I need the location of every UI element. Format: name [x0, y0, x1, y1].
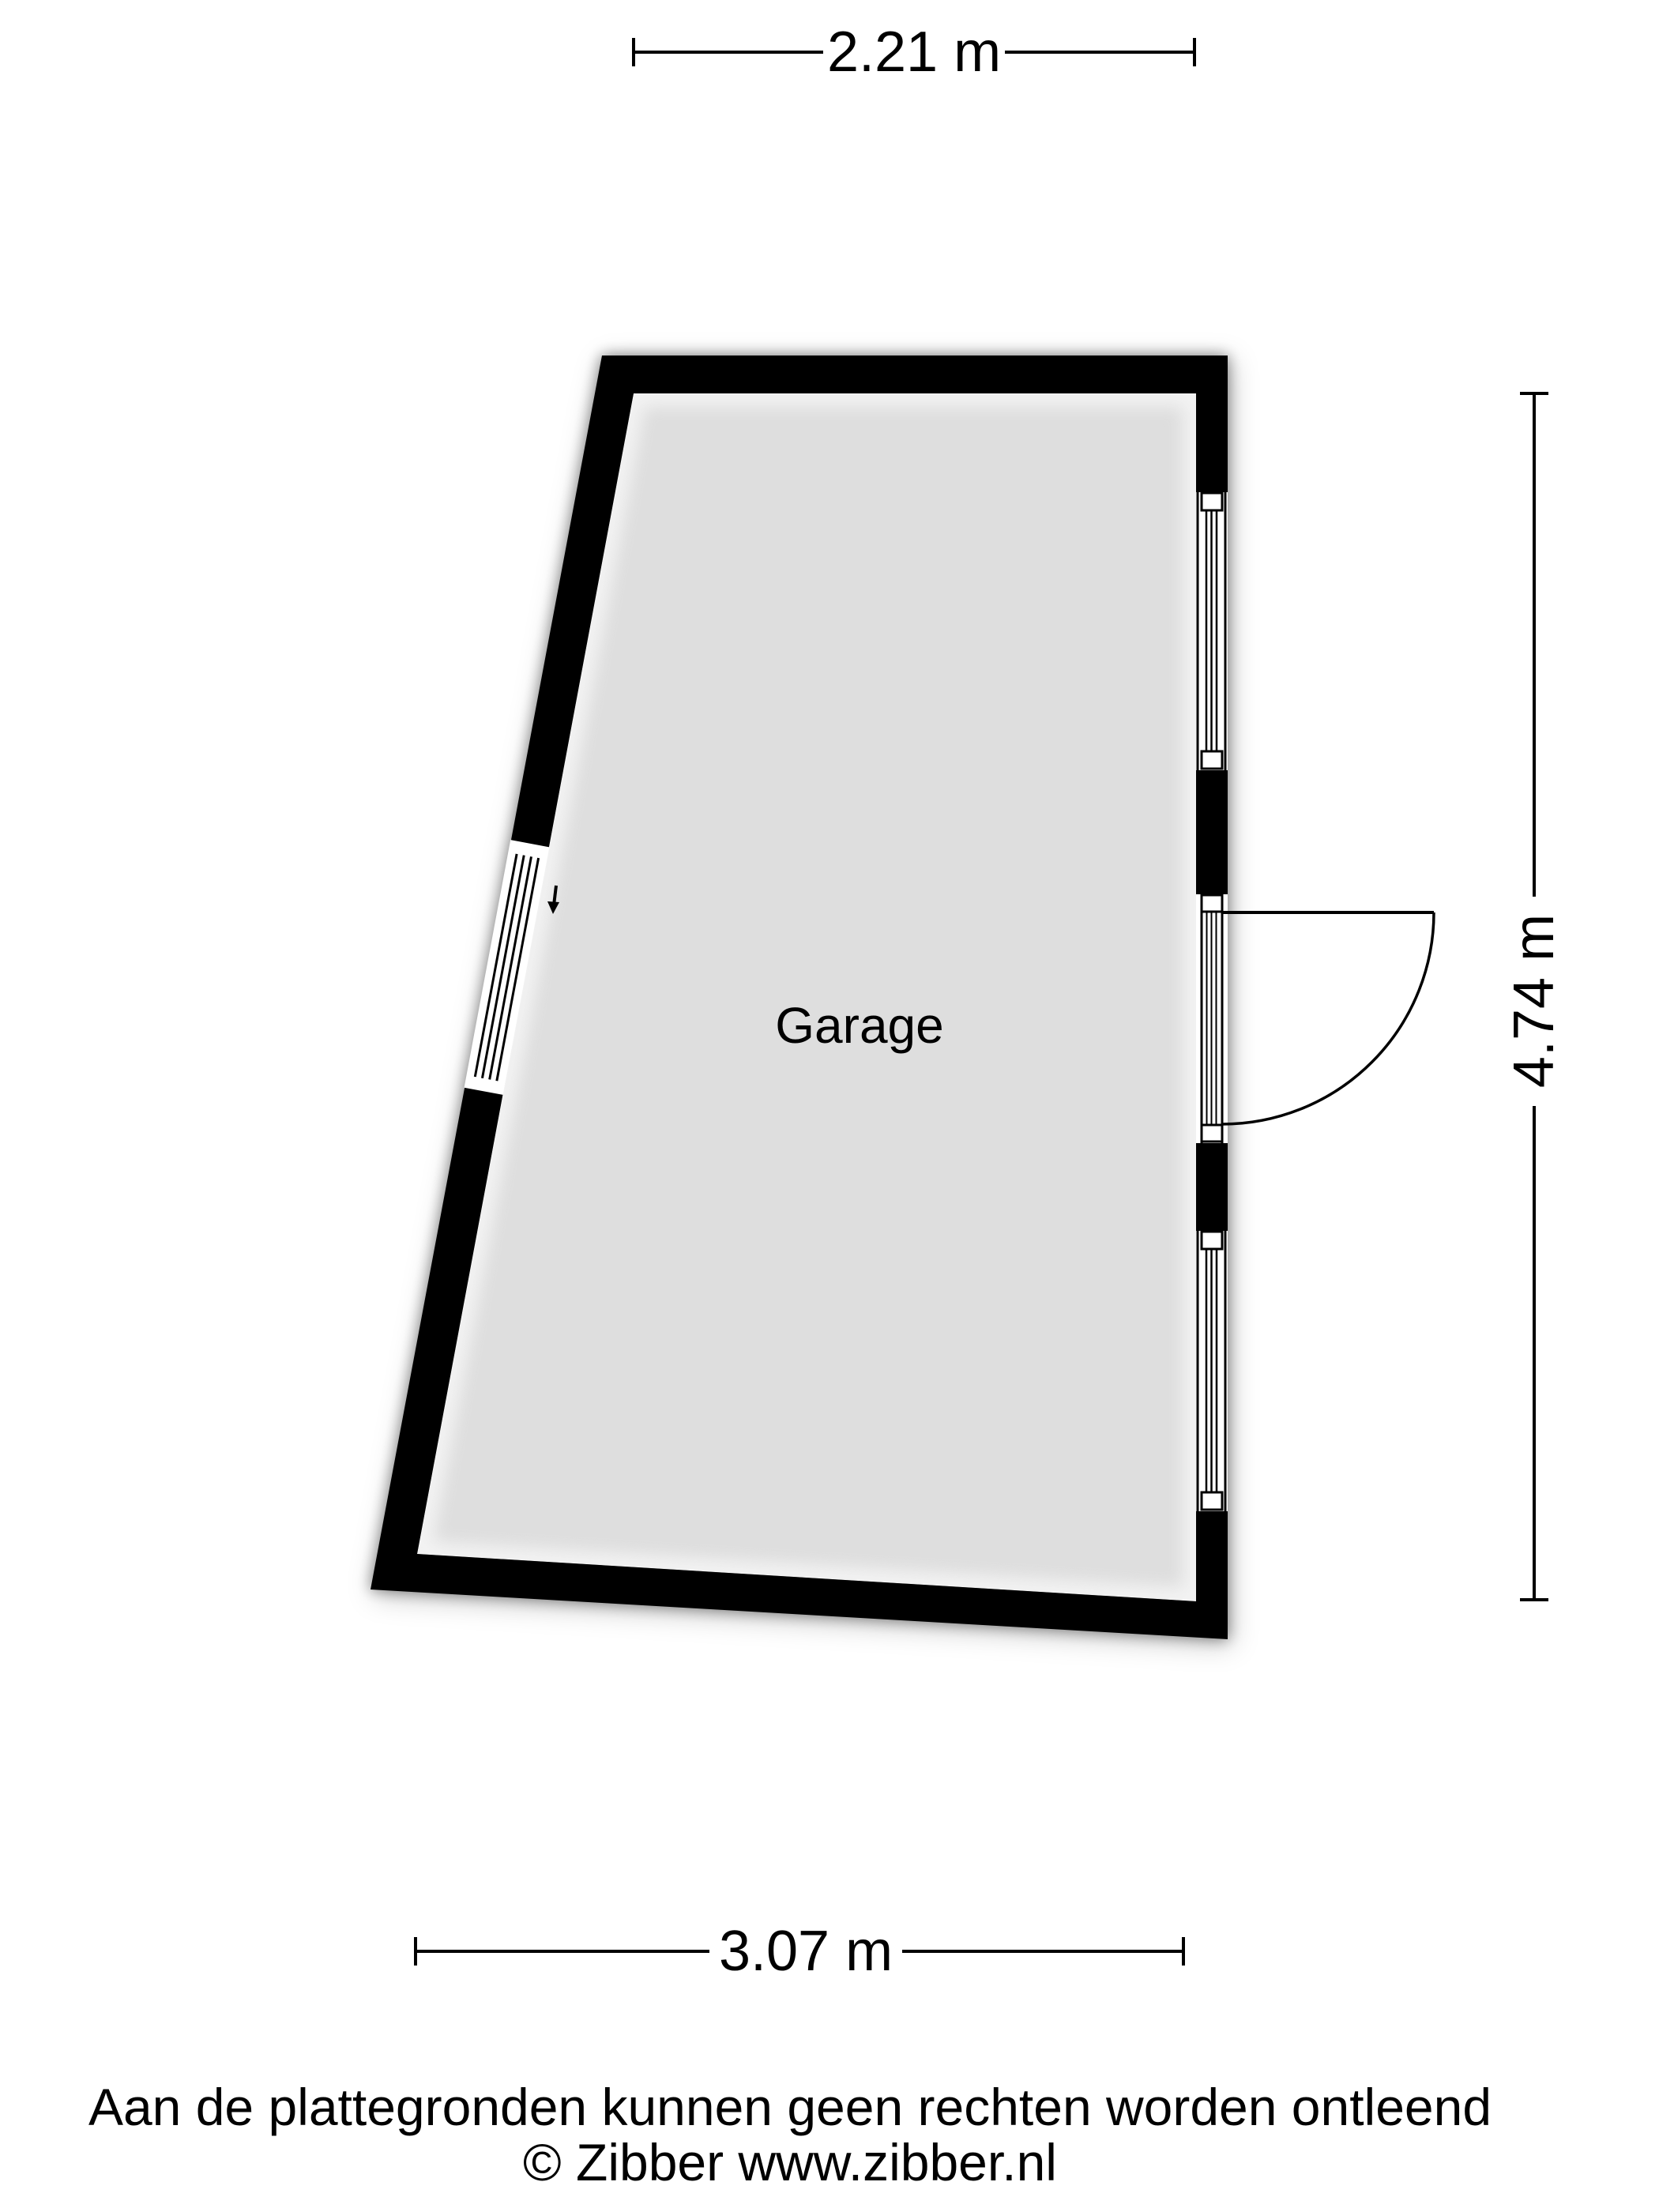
door-right-opening [1196, 894, 1228, 1143]
dimension-top: 2.21 m [634, 21, 1194, 84]
dimension-right: 4.74 m [1503, 393, 1566, 1600]
window-right-bottom [1196, 1231, 1228, 1511]
dimension-bottom-label: 3.07 m [719, 1920, 893, 1983]
floorplan-page: Garage 2.21 m 4.74 m 3.07 m Aan de platt… [0, 0, 1659, 2212]
door-swing [1222, 912, 1434, 1124]
dimension-right-label: 4.74 m [1503, 914, 1566, 1088]
footer-disclaimer: Aan de plattegronden kunnen geen rechten… [88, 2078, 1492, 2136]
door-swing-arc [1222, 912, 1434, 1124]
dimension-bottom: 3.07 m [416, 1920, 1183, 1983]
window-right-top [1196, 492, 1228, 770]
room-label: Garage [775, 997, 943, 1054]
floorplan-canvas: Garage 2.21 m 4.74 m 3.07 m Aan de platt… [0, 0, 1659, 2212]
dimension-top-label: 2.21 m [827, 21, 1001, 84]
footer-copyright: © Zibber www.zibber.nl [523, 2133, 1057, 2191]
